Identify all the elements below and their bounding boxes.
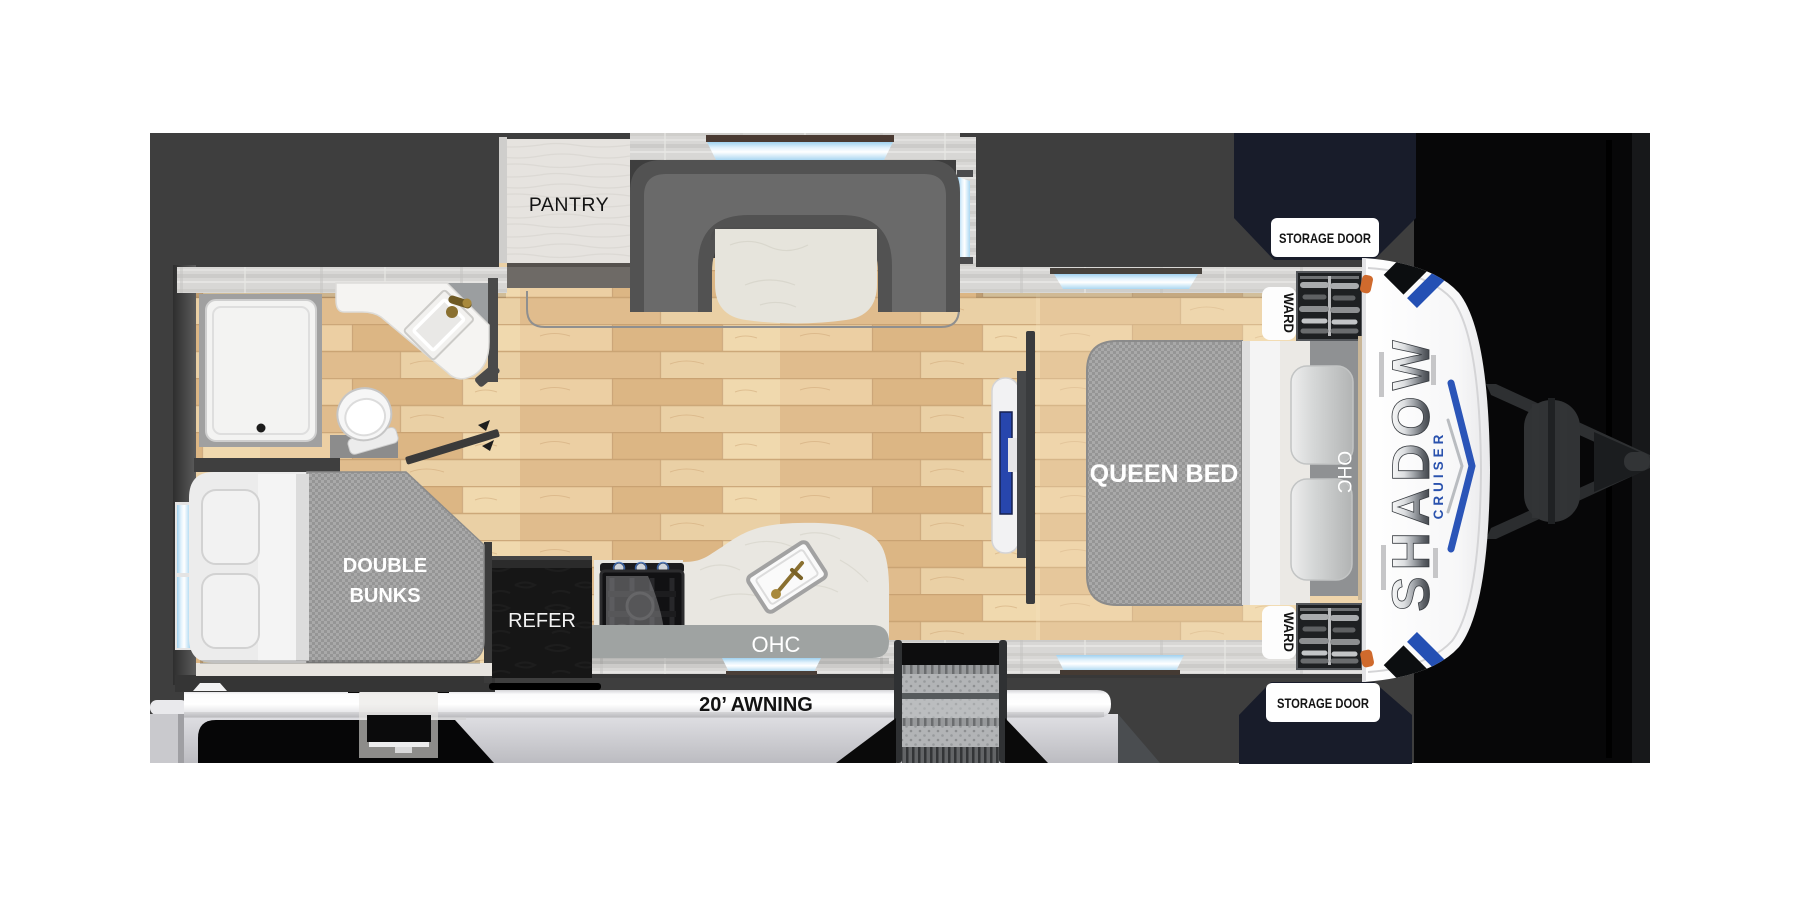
svg-text:QUEEN BED: QUEEN BED [1090, 460, 1239, 488]
svg-text:BUNKS: BUNKS [349, 585, 420, 607]
svg-text:WARD: WARD [1281, 612, 1297, 652]
svg-text:DOUBLE: DOUBLE [343, 555, 427, 577]
svg-text:STORAGE DOOR: STORAGE DOOR [1279, 230, 1371, 246]
svg-text:WARD: WARD [1281, 293, 1297, 333]
svg-text:20’ AWNING: 20’ AWNING [699, 694, 813, 716]
svg-text:STORAGE DOOR: STORAGE DOOR [1277, 695, 1369, 711]
svg-text:PANTRY: PANTRY [529, 194, 609, 216]
svg-text:OHC: OHC [752, 632, 801, 657]
svg-text:REFER: REFER [508, 610, 576, 632]
svg-text:OHC: OHC [1333, 451, 1354, 493]
svg-text:CRUISER: CRUISER [1431, 431, 1446, 520]
